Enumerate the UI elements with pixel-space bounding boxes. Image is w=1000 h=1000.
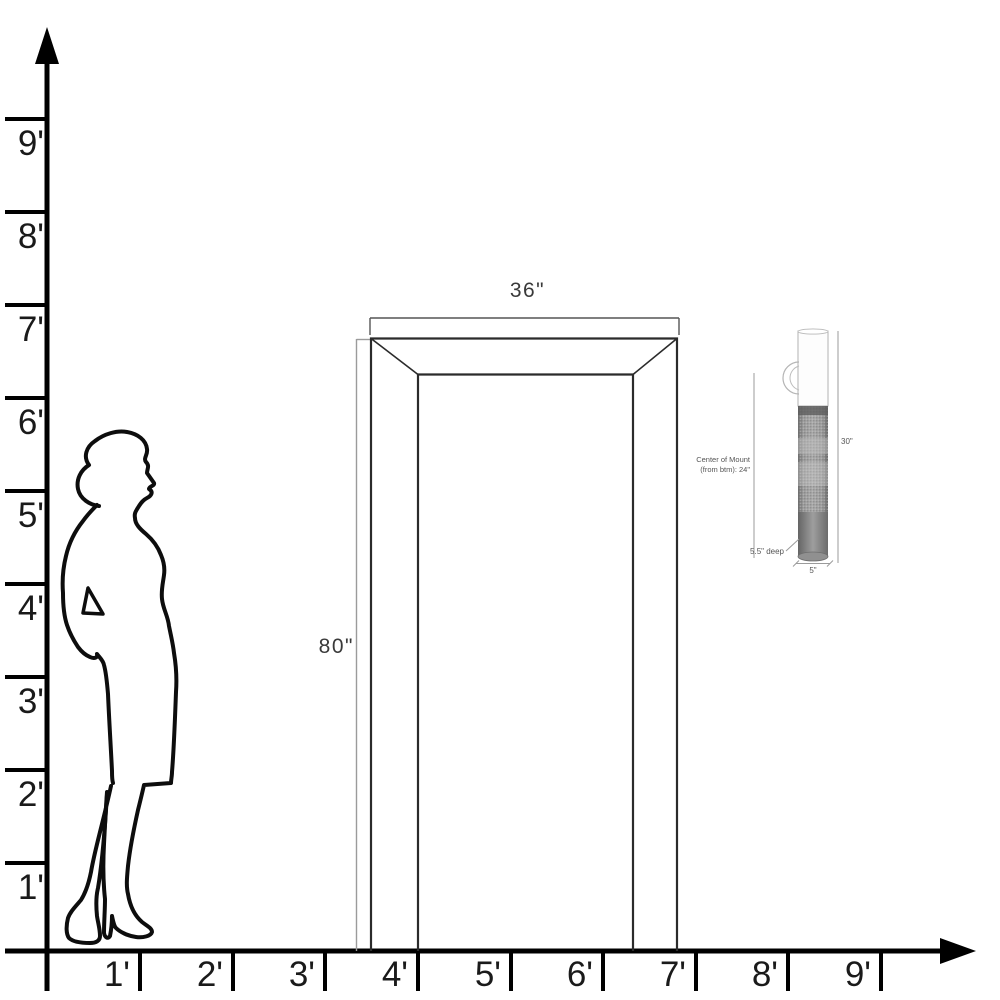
vertical-ruler-label-5ft: 5' (0, 497, 44, 535)
woman-back-arm-outline (63, 505, 113, 783)
vertical-ruler-label-1ft: 1' (0, 869, 44, 907)
door-inner-frame (418, 375, 633, 952)
horizontal-ruler-label-7ft: 7' (624, 956, 686, 994)
sconce-mesh-light-band-2 (798, 462, 828, 486)
sconce-mesh-top-band (798, 406, 828, 415)
sconce-mount-label-line1: Center of Mount (678, 455, 750, 465)
scale-diagram: 9' 8' 7' 6' 5' 4' 3' 2' 1' 1' 2' 3' 4' 5… (0, 0, 1000, 1000)
woman-arm-gap (83, 588, 103, 614)
vertical-ruler-label-2ft: 2' (0, 776, 44, 814)
sconce-mount-label-line2: (from btm): 24" (678, 465, 750, 475)
vertical-axis-arrow-icon (35, 27, 59, 64)
sconce-glass-tube (798, 331, 828, 406)
horizontal-ruler-label-4ft: 4' (346, 956, 408, 994)
door-height-label: 80" (298, 636, 354, 658)
horizontal-axis-arrow-icon (940, 938, 976, 964)
vertical-ruler-label-7ft: 7' (0, 311, 44, 349)
door-width-bracket (370, 318, 679, 335)
sconce-depth-label: 5.5" deep (726, 547, 784, 556)
sconce-mesh-light-band-1 (798, 438, 828, 454)
horizontal-ruler-label-8ft: 8' (716, 956, 778, 994)
horizontal-ruler-label-5ft: 5' (439, 956, 501, 994)
door-width-label: 36" (480, 280, 575, 302)
vertical-ruler-label-8ft: 8' (0, 218, 44, 256)
vertical-ruler-label-9ft: 9' (0, 125, 44, 163)
door-miter-left (371, 339, 418, 375)
horizontal-ruler-label-3ft: 3' (253, 956, 315, 994)
sconce-top-rim (798, 329, 828, 334)
sconce-bottom-cap (798, 552, 828, 561)
sconce-depth-pointer-line (786, 539, 799, 551)
horizontal-ruler-label-1ft: 1' (68, 956, 130, 994)
horizontal-ruler-label-2ft: 2' (161, 956, 223, 994)
sconce-mount-label: Center of Mount (from btm): 24" (678, 455, 750, 474)
door-miter-right (633, 339, 677, 375)
sconce-mesh-texture (798, 406, 828, 512)
sconce-solid-base (798, 512, 828, 557)
diagram-canvas (0, 0, 1000, 1000)
sconce-width-label: 5" (795, 566, 831, 575)
vertical-ruler-label-3ft: 3' (0, 683, 44, 721)
vertical-ruler-label-6ft: 6' (0, 404, 44, 442)
sconce-drawing (754, 329, 838, 567)
door-frame-drawing (357, 318, 680, 951)
horizontal-ruler-label-6ft: 6' (531, 956, 593, 994)
woman-silhouette (63, 431, 177, 943)
door-height-measure-line (357, 339, 372, 951)
vertical-ruler-label-4ft: 4' (0, 590, 44, 628)
horizontal-ruler-label-9ft: 9' (809, 956, 871, 994)
sconce-height-label: 30" (841, 437, 853, 446)
